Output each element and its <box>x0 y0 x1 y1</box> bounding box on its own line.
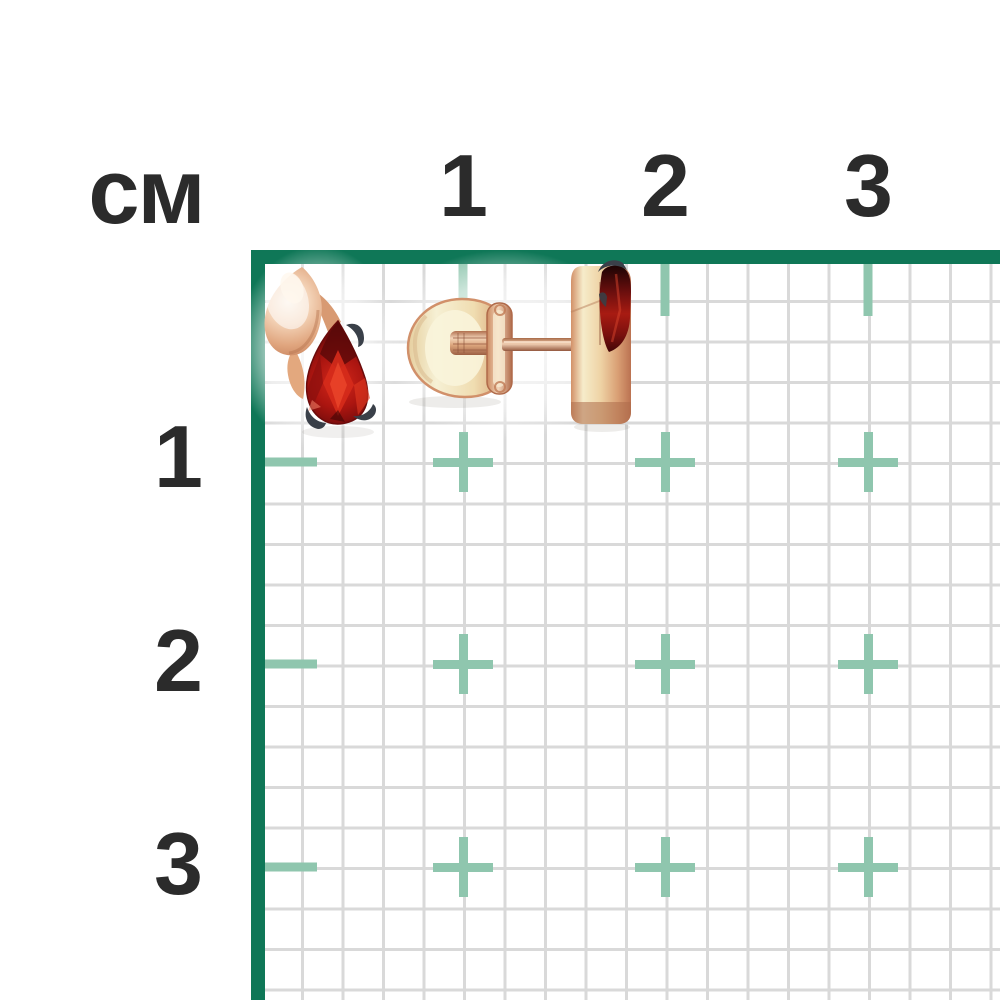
cm-cross-mark <box>838 634 898 694</box>
top-axis-tick-2: 2 <box>641 142 689 230</box>
cm-edge-tick-left-3 <box>265 863 317 872</box>
cm-cross-mark <box>433 634 493 694</box>
mount-bottom-shade <box>571 402 631 424</box>
shadow <box>302 426 374 438</box>
product-photo <box>250 250 670 470</box>
cm-edge-tick-left-2 <box>265 660 317 669</box>
shadow <box>409 396 501 408</box>
left-axis-tick-1: 1 <box>154 413 202 501</box>
unit-label: см <box>88 146 203 238</box>
cm-cross-mark <box>433 837 493 897</box>
cm-cross-mark <box>635 837 695 897</box>
cm-cross-mark <box>838 837 898 897</box>
cm-cross-mark <box>838 432 898 492</box>
top-axis-tick-1: 1 <box>439 142 487 230</box>
top-axis-tick-3: 3 <box>844 142 892 230</box>
cm-cross-mark <box>635 634 695 694</box>
left-axis-tick-3: 3 <box>154 820 202 908</box>
cm-edge-tick-top-3 <box>864 264 873 316</box>
left-axis-tick-2: 2 <box>154 617 202 705</box>
size-chart-product-image: см 1 2 3 1 2 3 <box>0 0 1000 1000</box>
